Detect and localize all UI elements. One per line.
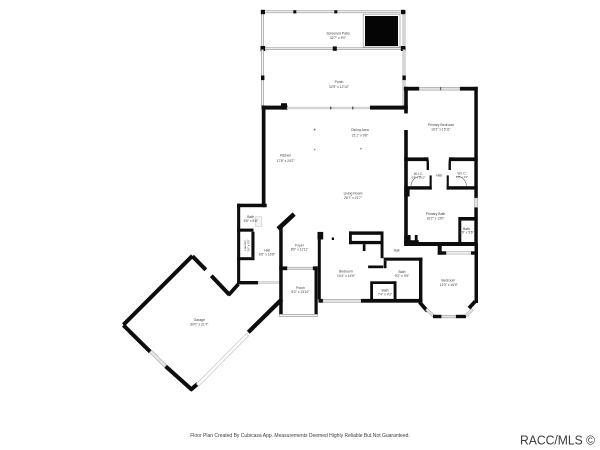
svg-text:Hall: Hall: [436, 174, 442, 178]
svg-text:Living Room: Living Room: [344, 191, 363, 195]
svg-text:Hall: Hall: [394, 249, 400, 253]
svg-text:17'8" x 24'2": 17'8" x 24'2": [276, 159, 295, 163]
svg-text:8'6" x 11'11": 8'6" x 11'11": [291, 247, 309, 251]
svg-text:8'2" x 13'10": 8'2" x 13'10": [291, 290, 310, 294]
svg-text:7'4" x 4'2": 7'4" x 4'2": [378, 292, 393, 296]
svg-text:16'2" x 13'0": 16'2" x 13'0": [426, 216, 445, 220]
svg-text:5'8" x 5'8": 5'8" x 5'8": [244, 219, 259, 223]
svg-text:30'0" x 21'7": 30'0" x 21'7": [190, 323, 209, 327]
svg-text:3'6" x 9'0": 3'6" x 9'0": [247, 239, 251, 251]
svg-text:6'6" x 16'8": 6'6" x 16'8": [259, 252, 276, 256]
svg-text:13'3" x 16'9": 13'3" x 16'9": [440, 283, 459, 287]
svg-text:Screened Patio: Screened Patio: [326, 31, 349, 35]
svg-text:16'2" x 15'11": 16'2" x 15'11": [431, 128, 451, 132]
svg-text:5'8" x 6'10": 5'8" x 6'10": [412, 175, 426, 179]
svg-text:Kitchen: Kitchen: [280, 154, 291, 158]
svg-text:14'4" x 14'5": 14'4" x 14'5": [337, 274, 356, 278]
svg-text:RACC/MLS ©: RACC/MLS ©: [520, 433, 595, 448]
svg-text:Primary Bedroom: Primary Bedroom: [428, 123, 455, 127]
svg-text:Floor Plan Created By Cubicasa: Floor Plan Created By Cubicasa App. Meas…: [190, 433, 410, 439]
svg-text:5'9" x 5'6": 5'9" x 5'6": [459, 231, 474, 235]
svg-text:Garage: Garage: [194, 318, 205, 322]
svg-text:Dining Area: Dining Area: [351, 128, 369, 132]
svg-text:26'7" x 21'7": 26'7" x 21'7": [344, 196, 363, 200]
svg-text:32'9" x 12'10": 32'9" x 12'10": [329, 85, 350, 89]
svg-text:9'2" x 9'9": 9'2" x 9'9": [395, 274, 410, 278]
svg-text:21'1" x 9'8": 21'1" x 9'8": [352, 133, 369, 137]
svg-text:32'7" x 9'0": 32'7" x 9'0": [330, 36, 347, 40]
svg-text:6'5" x 4'4": 6'5" x 4'4": [456, 175, 468, 179]
svg-text:Porch: Porch: [335, 80, 344, 84]
svg-text:Bedroom: Bedroom: [441, 279, 455, 283]
